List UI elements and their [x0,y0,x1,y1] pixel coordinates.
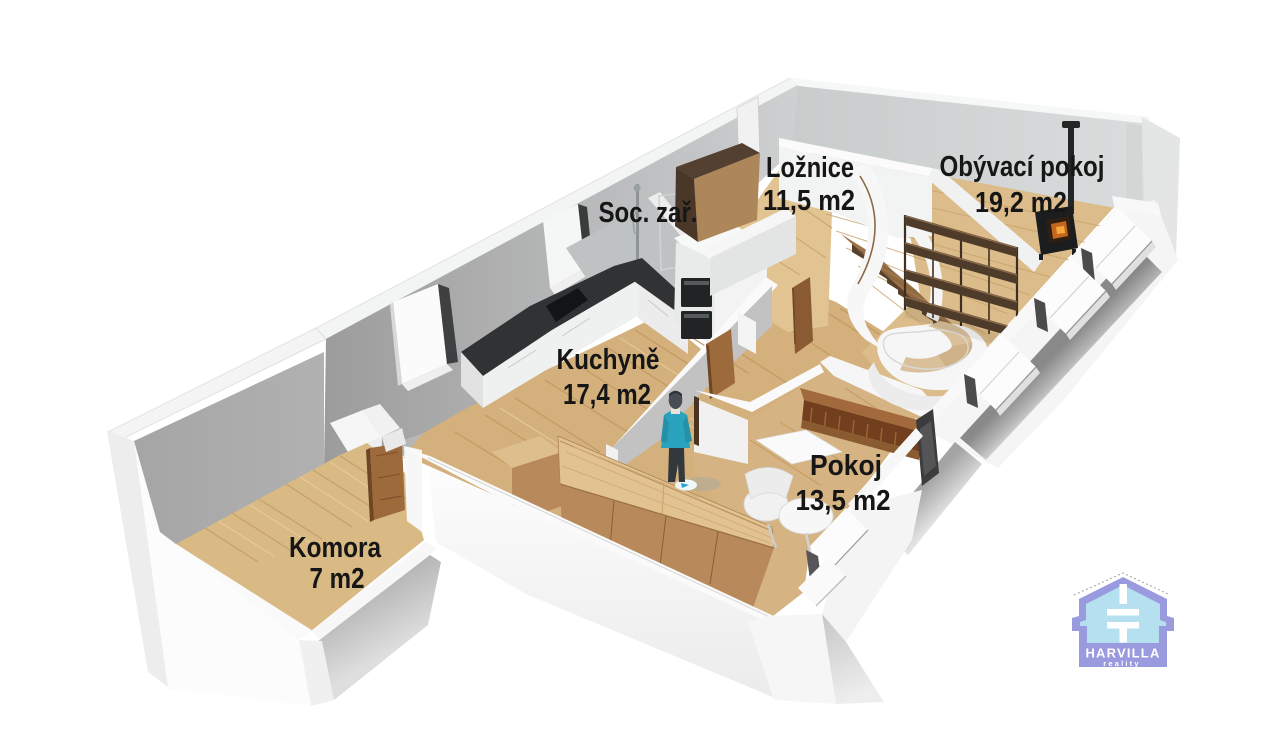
svg-text:17,4 m2: 17,4 m2 [563,379,651,411]
svg-text:13,5 m2: 13,5 m2 [796,485,891,517]
svg-text:7 m2: 7 m2 [310,563,365,595]
svg-text:Ložnice: Ložnice [766,152,854,184]
svg-text:reality: reality [1103,659,1141,668]
svg-text:Komora: Komora [289,532,382,564]
svg-text:Pokoj: Pokoj [810,450,882,482]
svg-text:Soc. zař.: Soc. zař. [599,197,698,229]
svg-text:Kuchyně: Kuchyně [557,344,660,376]
svg-text:11,5 m2: 11,5 m2 [763,185,855,217]
svg-text:19,2 m2: 19,2 m2 [975,187,1067,219]
svg-text:Obývací pokoj: Obývací pokoj [940,151,1105,183]
